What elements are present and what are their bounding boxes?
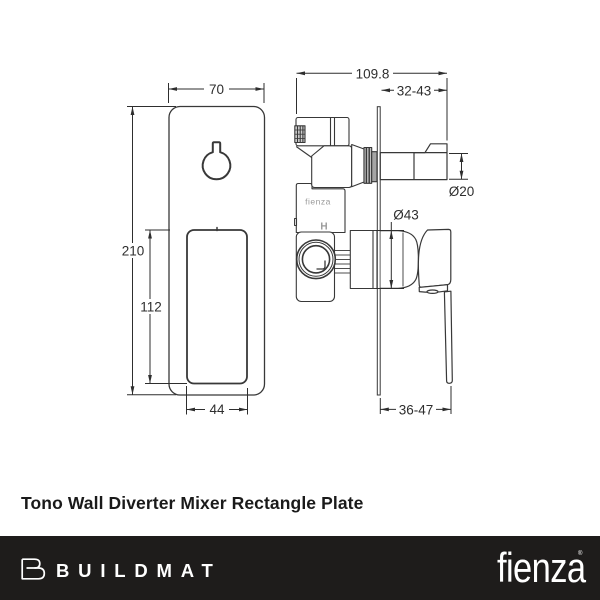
svg-text:H: H (320, 222, 327, 233)
svg-text:112: 112 (140, 300, 162, 315)
svg-text:109.8: 109.8 (356, 66, 390, 81)
svg-text:210: 210 (122, 244, 145, 259)
svg-text:36-47: 36-47 (399, 402, 434, 417)
svg-text:44: 44 (209, 402, 225, 417)
svg-text:Ø20: Ø20 (449, 184, 475, 199)
svg-text:fienza: fienza (305, 197, 331, 207)
svg-text:Ø43: Ø43 (393, 208, 419, 223)
svg-text:32-43: 32-43 (397, 83, 432, 98)
svg-text:70: 70 (209, 82, 224, 97)
